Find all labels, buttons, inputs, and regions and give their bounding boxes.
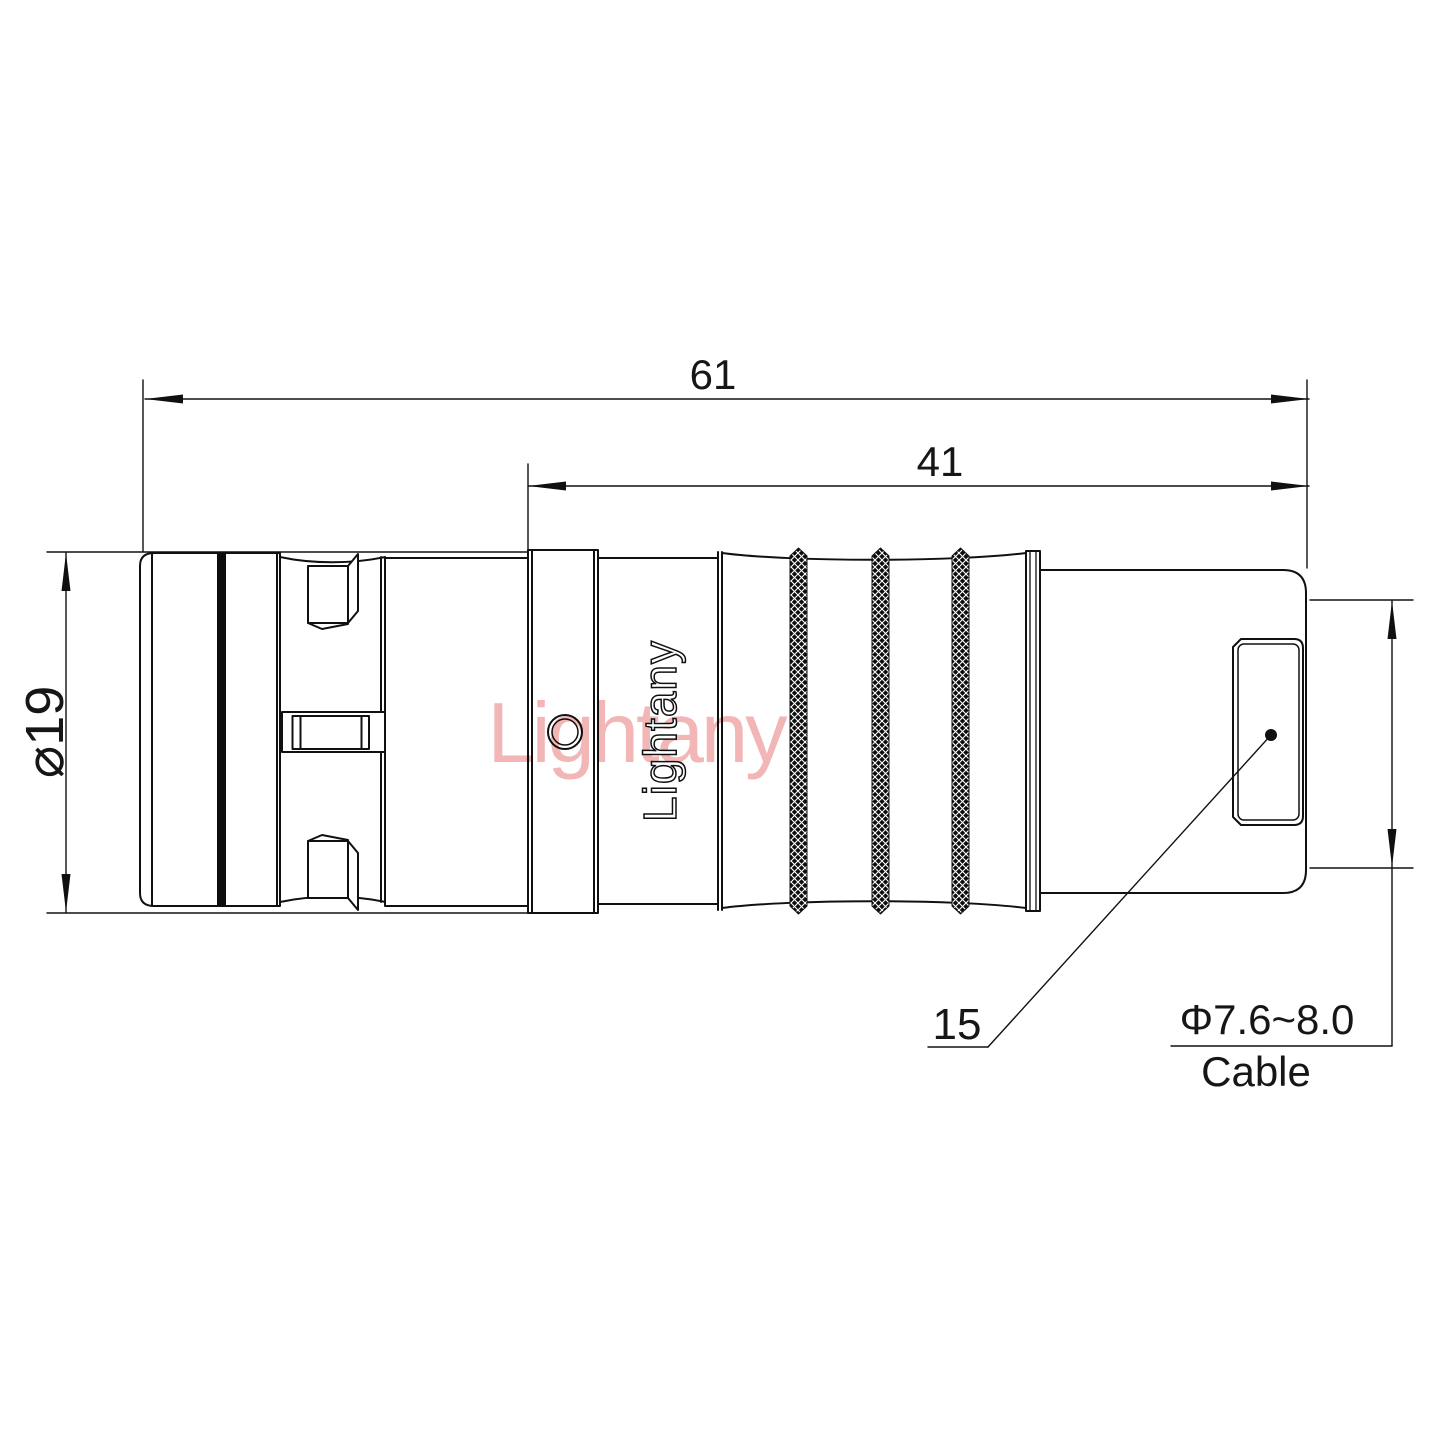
- arrow-diameter-down: [62, 874, 71, 912]
- arrow-overall-right: [1271, 395, 1309, 404]
- brand-label: Lightany: [634, 640, 686, 822]
- arrow-rear-left: [528, 482, 566, 491]
- latch-slot-pin: [293, 716, 370, 749]
- dim-text-overall-length: 61: [690, 351, 737, 398]
- front-shell: [140, 553, 280, 906]
- front-shell-black-stripe: [217, 553, 226, 906]
- knurl-ring: [790, 548, 807, 914]
- dim-text-diameter: ⌀19: [15, 686, 75, 779]
- top-lug-plate: [348, 554, 358, 623]
- dim-text-cable-caption: Cable: [1201, 1048, 1311, 1095]
- arrow-diameter-up: [62, 553, 71, 591]
- top-lug-face: [308, 566, 348, 623]
- dim-text-nut-size: 15: [933, 1000, 982, 1049]
- end-ring: [1026, 551, 1040, 911]
- knurl-ring: [872, 548, 889, 914]
- connector-technical-drawing: Lightany Lightany 61 41 ⌀19: [0, 0, 1440, 1440]
- bottom-lug-face: [308, 841, 348, 898]
- knurl-ring: [952, 548, 969, 914]
- bottom-lug-plate: [348, 841, 358, 910]
- dim-text-cable-diameter: Φ7.6~8.0: [1180, 996, 1355, 1043]
- arrow-overall-left: [145, 395, 183, 404]
- leader-dot: [1265, 729, 1277, 741]
- arrow-rear-right: [1271, 482, 1309, 491]
- drawing-canvas: Lightany Lightany 61 41 ⌀19: [0, 0, 1440, 1440]
- arrow-cable-down: [1388, 829, 1397, 867]
- arrow-cable-up: [1388, 601, 1397, 639]
- dim-text-rear-length: 41: [917, 438, 964, 485]
